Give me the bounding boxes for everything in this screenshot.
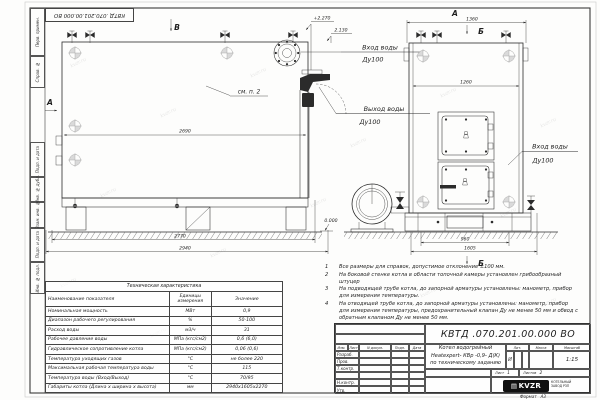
dim-2940: 2940 [179,246,191,252]
spec-col-units: Единицы измерения [169,292,211,306]
row-razrab: Разраб. [335,351,359,358]
kvzr-logo-icon: ▤ [511,383,517,390]
boiler-side-view [56,31,346,230]
change-row [335,334,425,344]
frame-field-label: Взам. инв. № [35,201,40,229]
empty-cell [425,377,491,394]
note-text: Все размеры для справок, допустимое откл… [339,264,579,271]
doc-number: КВТД .070.201.00.000 ВО [425,324,591,344]
row-units: мм [169,384,211,393]
frame-field-perv-primen: Перв. примен. [30,8,45,56]
dim-1260: 1260 [460,80,472,86]
frame-field-label: Подп. и дата [35,231,40,258]
format-note: Формат А3 [520,394,546,399]
sheet-value: 1 [507,371,510,376]
lit-cell [522,351,529,369]
frame-field-vzam-inv: Взам. инв. № [30,202,45,228]
change-row [335,324,425,334]
sheets-cell: Листов2 [519,369,591,377]
row-nkontr: Н.контр. [335,379,359,386]
inlet-flange [274,40,300,66]
front-view-base [405,213,531,231]
empty-cell [425,369,491,377]
col-podp: Подп. [391,344,409,351]
row-units: МВт [169,307,211,316]
logo-caption: КОТЕЛЬНЫЙ ЗАВОД РЗП [551,381,571,389]
table-row: Гидравлическое сопротивление котлаМПа (к… [46,344,282,354]
view-label-a: А [46,98,53,107]
row-name: Температура воды (Вход/Выход) [46,374,169,383]
row-value: 0,06 (0,6) [211,345,282,354]
row-units: МПа (кгс/см2) [169,345,211,354]
upper-furnace-door [438,112,494,160]
row-units: °С [169,374,211,383]
sig-cell [409,386,425,394]
note-item: 2На боковой стенке котла в области топоч… [325,272,579,286]
top-stamp-text: КВТД .070.201.00.000 ВО [54,12,125,18]
row-prov: Пров. [335,358,359,365]
elevation-mid: 2.130 [334,28,347,34]
row-units: °С [169,364,211,373]
row-value: 2940х1605х2270 [211,384,282,393]
logo-caption-line2: ЗАВОД РЗП [551,385,571,389]
spec-table-header: Наименование показателя Единицы измерени… [46,292,282,306]
table-row: Рабочее давление водыМПа (кгс/см2)0,6 (6… [46,335,282,345]
col-list: Лист [348,344,359,351]
table-row: Габариты котла (Длина х ширина х высота)… [46,383,282,393]
sheet-label: Лист [495,371,504,375]
format-label: Формат [520,394,537,399]
outlet-pipe [300,70,346,198]
frame-field-label: Справ. № [35,62,40,82]
note-number: 2 [325,272,339,286]
table-row: Диапазон рабочего регулирования%50-100 [46,316,282,326]
spec-col-name: Наименование показателя [46,292,169,306]
row-name: Гидравлическое сопротивление котла [46,345,169,354]
sig-cell [359,351,391,358]
sig-cell [359,372,391,379]
col-izm: Изм. [335,344,348,351]
sig-cell [409,365,425,372]
kvzr-logo: ▤ KVZR [503,380,549,392]
row-units: % [169,317,211,326]
dim-1360: 1360 [466,17,478,23]
row-value: 70/95 [211,374,282,383]
row-units: м3/ч [169,326,211,335]
row-value: 0,9 [211,307,282,316]
see-note-label: см. п. 2 [238,90,261,96]
product-name: Котел водогрейный Heatexpert- КВр -0,9- … [425,344,506,369]
sig-cell [391,365,409,372]
lit-header: Лит. [506,344,529,351]
note-text: На отводящей трубе котла, до запорной ар… [339,301,579,321]
col-doc: N докум. [359,344,391,351]
row-name: Номинальная мощность [46,307,169,316]
frame-field-podp-data-2: Подп. и дата [30,228,45,262]
top-stamp-box: КВТД .070.201.00.000 ВО [45,8,134,22]
outlet-label-line1: Выход воды [364,105,405,113]
spec-table-title: Техническая характеристика [46,282,282,292]
spec-table: Техническая характеристика Наименование … [45,281,283,393]
sig-cell [409,358,425,365]
table-row: Расход водым3/ч31 [46,325,282,335]
sig-cell [335,372,359,379]
row-value: 115 [211,364,282,373]
elevation-zero: 0.000 [324,218,337,224]
side-view-dimensions: 2690 2770 2940 +2.270 2.130 0.000 [45,16,430,255]
product-name-line2: Heatexpert- КВр -0,9- Д(К) [431,353,500,360]
kvzr-logo-text: KVZR [519,382,542,390]
engineering-drawing-page: kvzr.ru kvzr.ru kvzr.ru kvzr.ru kvzr.ru … [0,0,600,400]
row-name: Рабочее давление воды [46,336,169,345]
massa-value [529,351,553,369]
sig-cell [359,365,391,372]
sig-cell [359,358,391,365]
sig-cell [391,351,409,358]
inlet-right-label-line2: Ду100 [532,157,554,165]
table-row: Номинальная мощностьМВт0,9 [46,306,282,316]
dim-1605: 1605 [464,246,476,252]
row-name: Максимальная рабочая температура воды [46,364,169,373]
product-name-line1: Котел водогрейный [439,345,492,352]
table-row: Температура воды (Вход/Выход)°С70/95 [46,373,282,383]
row-name: Расход воды [46,326,169,335]
outlet-label-line2: Ду100 [359,118,381,126]
row-name: Температура уходящих газов [46,355,169,364]
frame-field-inv-podl: Инв. № подл. [30,262,45,294]
note-item: 3На подводящей трубе котла, до запорной … [325,286,579,300]
row-value: 31 [211,326,282,335]
view-label-b: В [174,23,180,32]
notes-list: 1Все размеры для справок, допустимое отк… [325,264,579,322]
note-number: 1 [325,264,339,271]
frame-field-inv-dubl: Инв. № дубл. [30,177,45,202]
table-row: Температура уходящих газов°Сне более 220 [46,354,282,364]
row-value: 50-100 [211,317,282,326]
frame-field-podp-data-1: Подп. и дата [30,142,45,177]
note-number: 3 [325,286,339,300]
row-name: Диапазон рабочего регулирования [46,317,169,326]
masshtab-header: Масштаб [553,344,591,351]
scale-value: 1:15 [553,351,591,369]
massa-header: Масса [529,344,553,351]
section-label-b-top: Б [478,27,484,36]
product-name-line3: по техническому заданию [430,360,501,367]
lit-value: И [506,351,514,369]
sig-cell [359,379,391,386]
sig-cell [359,386,391,394]
lit-cell [514,351,522,369]
door-handle [440,185,456,189]
s-cell [409,379,425,386]
note-item: 4На отводящей трубе котла, до запорной а… [325,301,579,321]
inlet-right-label-line1: Вход воды [532,143,568,151]
sig-cell [391,372,409,379]
elevation-top: +2.270 [313,16,330,22]
row-utv: Утв. [335,386,359,394]
format-value: А3 [541,394,546,399]
spec-col-value: Значение [211,292,282,306]
lower-furnace-door [438,162,494,209]
frame-field-sprav-no: Справ. № [30,56,45,88]
sheets-value: 2 [539,371,542,376]
row-value: не более 220 [211,355,282,364]
col-data: Дата [409,344,425,351]
note-item: 1Все размеры для справок, допустимое отк… [325,264,579,271]
row-tkontr: Т.контр. [335,365,359,372]
sig-cell [391,379,409,386]
note-number: 4 [325,301,339,321]
row-units: °С [169,355,211,364]
ground-hatching [48,232,558,239]
sheet-cell: Лист1 [491,369,519,377]
front-view-dimensions: А 1360 Б 1260 960 1605 Б Вход воды Ду100 [407,9,578,268]
row-value: 0,6 (6,0) [211,336,282,345]
side-drain-valve [527,196,535,213]
note-text: На подводящей трубе котла, до запорной а… [339,286,579,300]
sig-cell [409,351,425,358]
sig-cell [391,358,409,365]
blower-fan [351,184,409,232]
row-units: МПа (кгс/см2) [169,336,211,345]
frame-field-label: Инв. № подл. [35,264,40,292]
note-text: На боковой стенке котла в области топочн… [339,272,579,286]
frame-field-label: Подп. и дата [35,146,40,173]
dim-2690: 2690 [179,129,191,135]
sig-cell [391,386,409,394]
view-label-a-top: А [451,9,458,18]
table-row: Максимальная рабочая температура воды°С1… [46,363,282,373]
row-name: Габариты котла (Длина х ширина х высота) [46,384,169,393]
inlet-label-line2: Ду100 [362,56,384,64]
frame-field-label: Перв. примен. [35,17,40,47]
inlet-label-line1: Вход воды [362,44,398,52]
sig-cell [409,372,425,379]
title-block: КВТД .070.201.00.000 ВО Изм. Лист N доку… [334,323,590,393]
sheets-label: Листов [523,371,536,375]
frame-field-label: Инв. № дубл. [35,175,40,203]
